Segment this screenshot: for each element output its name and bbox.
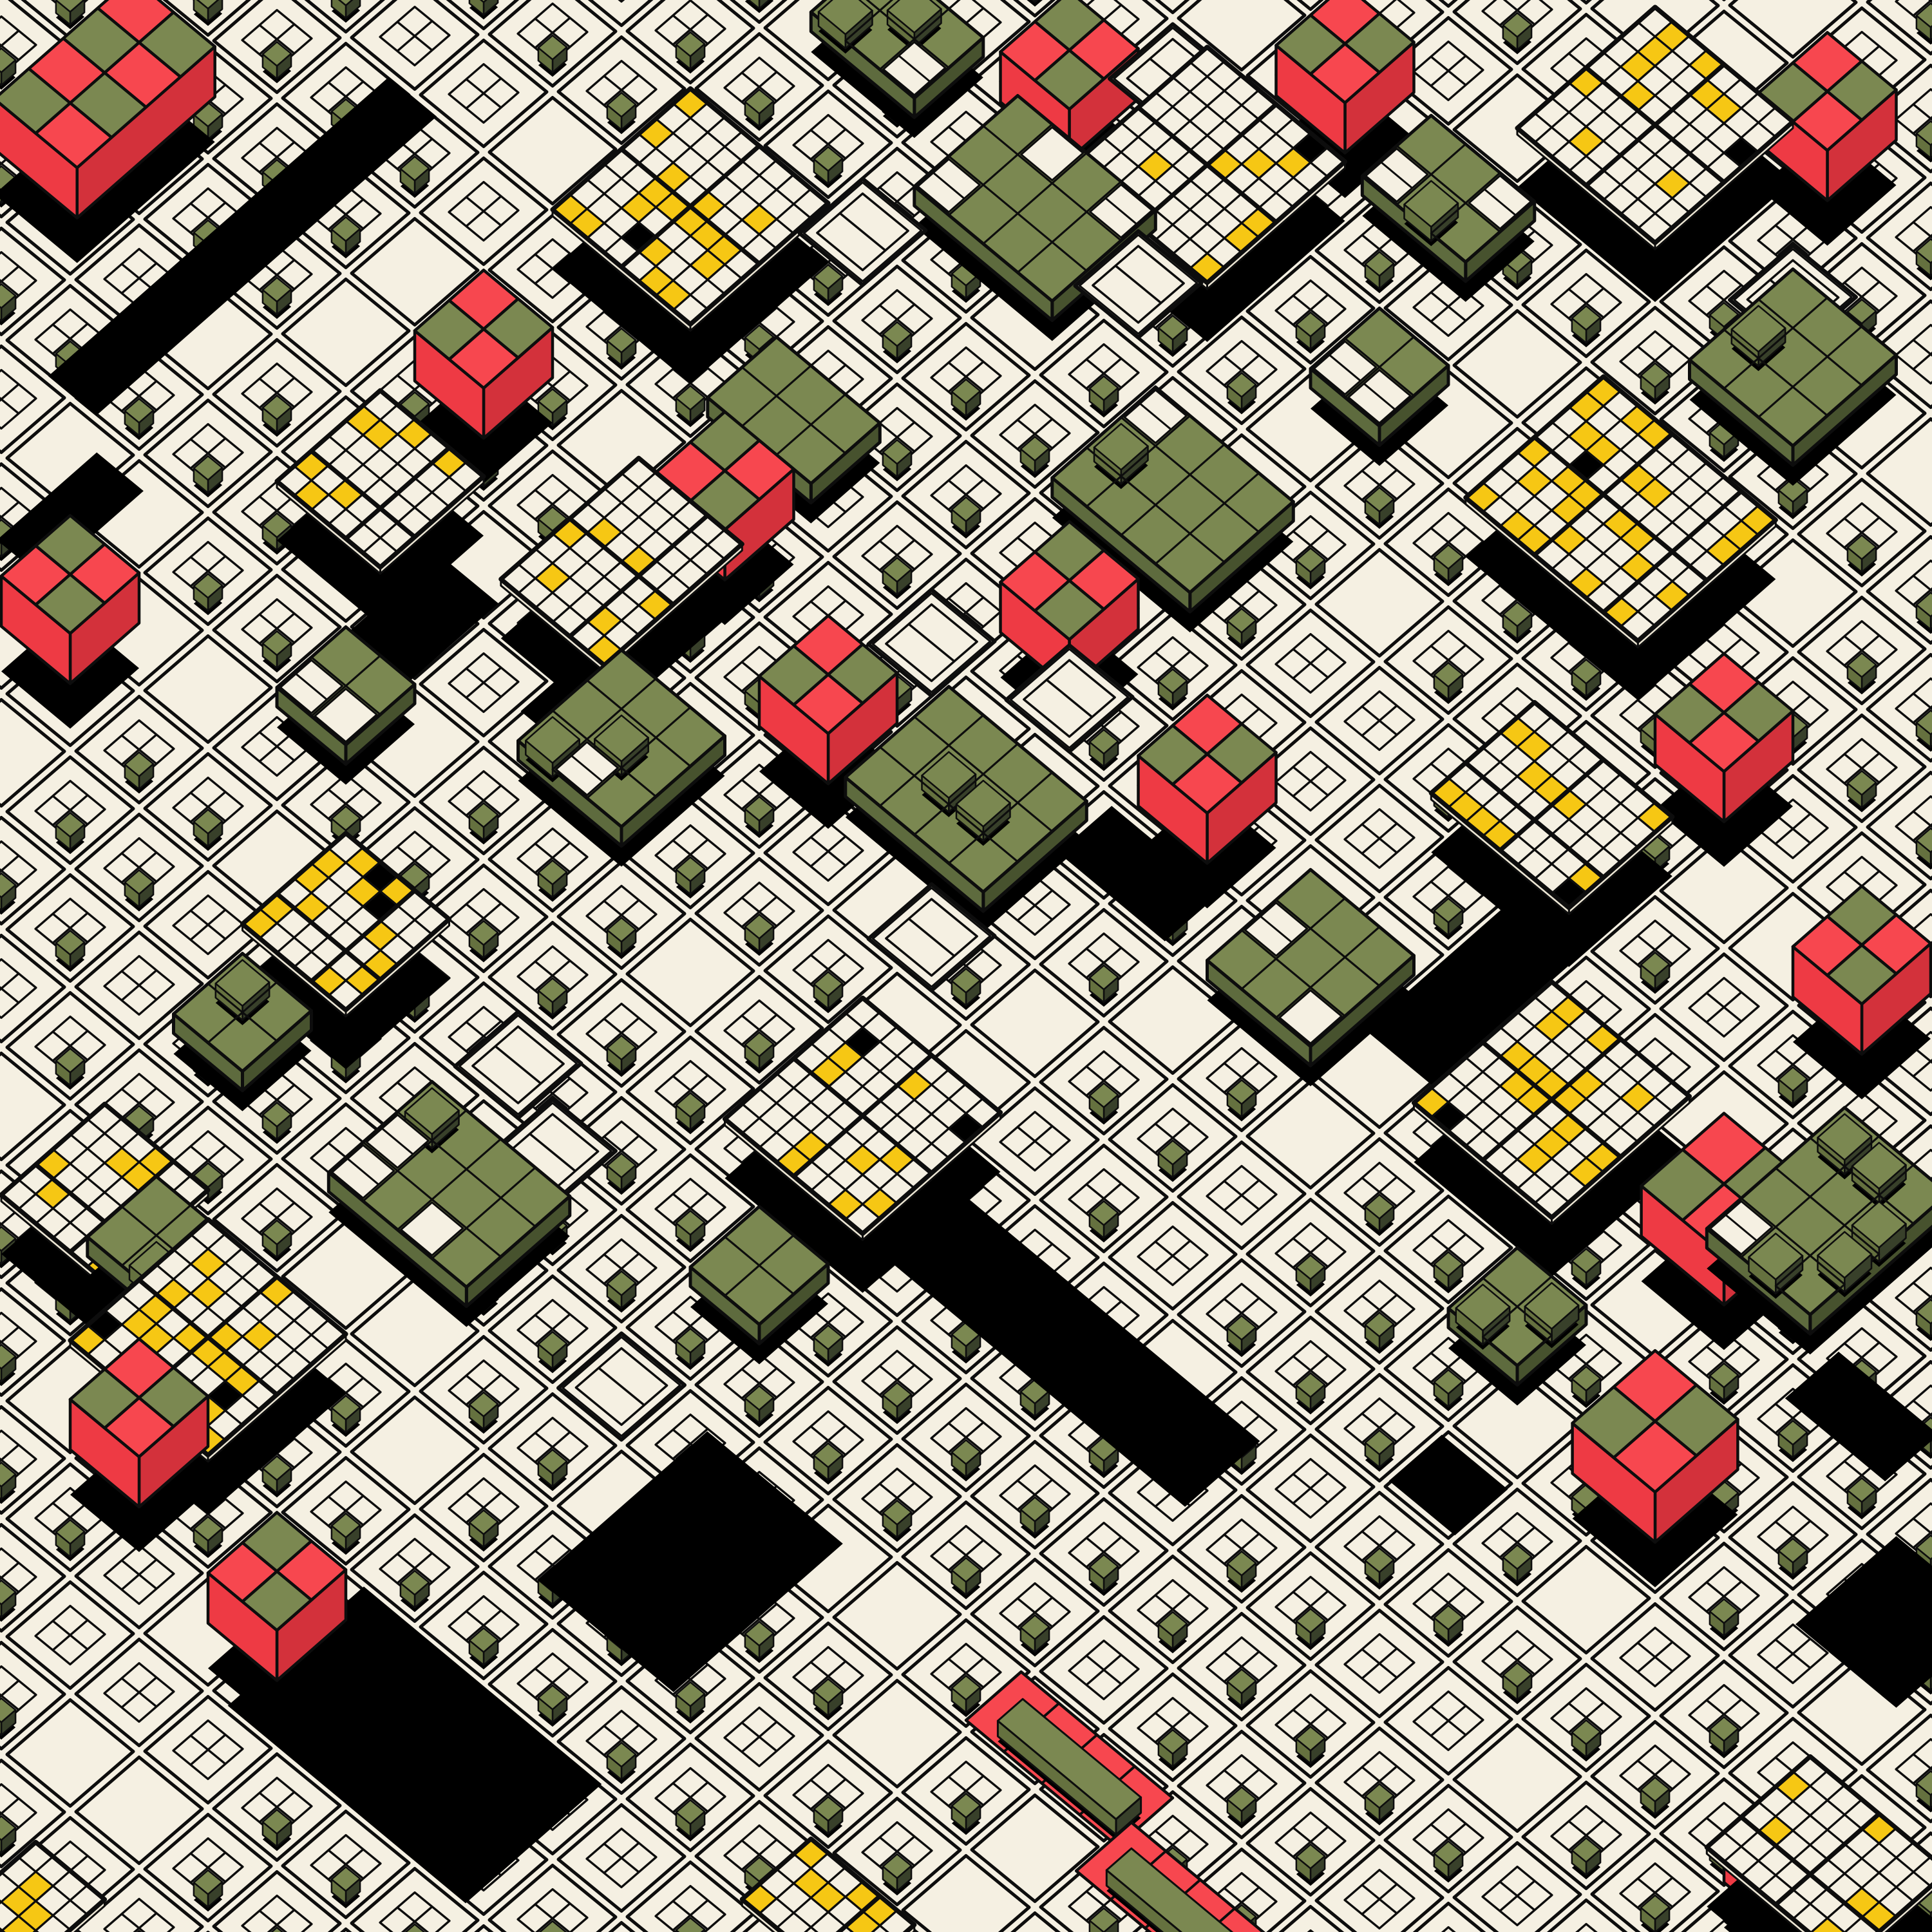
generative-artwork-canvas <box>0 0 1932 1932</box>
artwork-page <box>0 0 1932 1932</box>
